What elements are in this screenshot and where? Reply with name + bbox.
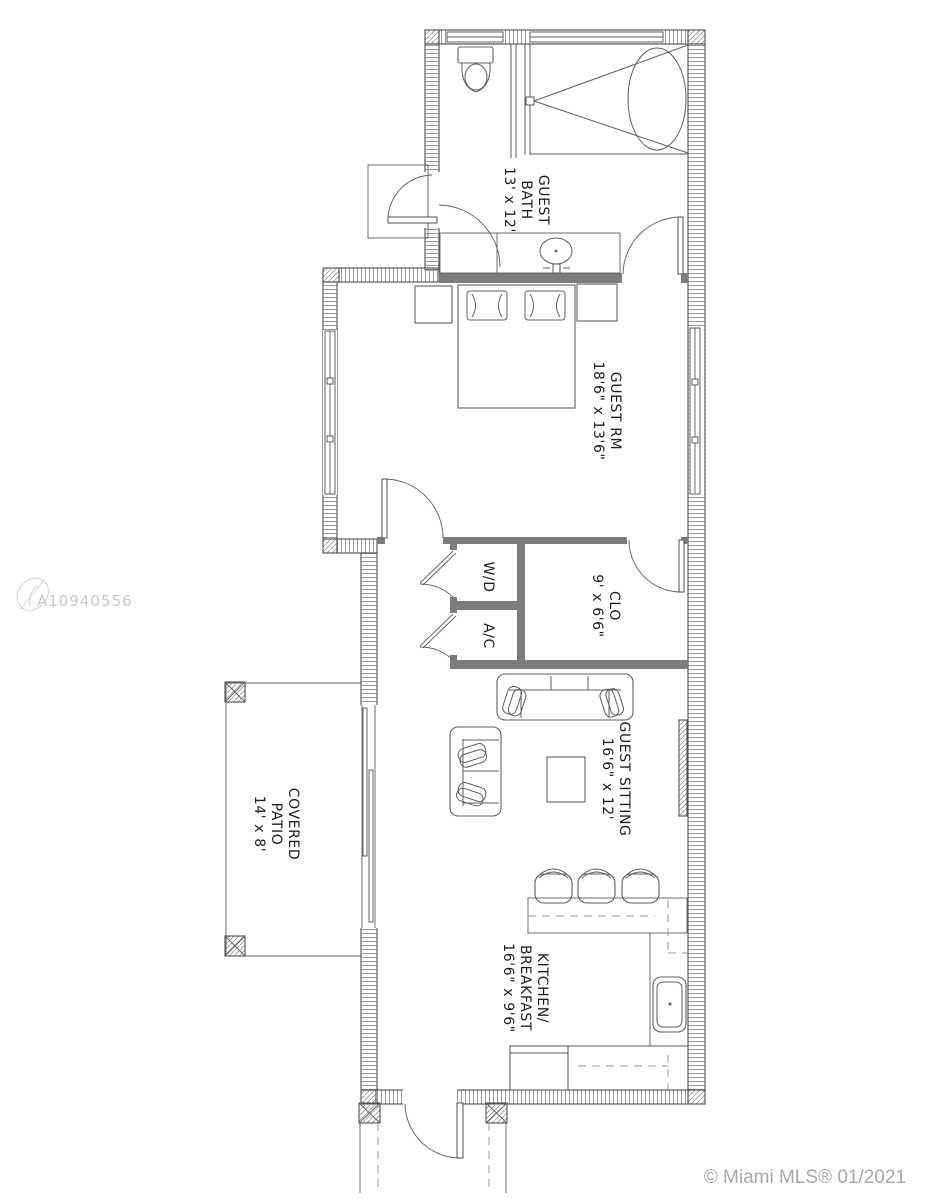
svg-text:W/D: W/D bbox=[480, 561, 496, 592]
toilet bbox=[458, 47, 493, 92]
sofa-long bbox=[497, 674, 633, 720]
wall-bath-left bbox=[425, 44, 439, 270]
tv-console bbox=[679, 720, 687, 816]
porch-post-left bbox=[359, 1103, 380, 1123]
bath-door-leaf bbox=[678, 217, 683, 274]
wall-wd-top bbox=[443, 537, 517, 544]
label-guest-bath: GUEST BATH 13' x 12' bbox=[501, 167, 551, 233]
wall-corner-tl bbox=[425, 30, 439, 44]
watermark-id: A10940556 bbox=[37, 592, 133, 610]
nightstand-right bbox=[577, 284, 617, 321]
bath-fixtures bbox=[440, 44, 688, 273]
svg-text:GUEST SITTING: GUEST SITTING bbox=[616, 722, 632, 837]
floor-plan-drawing: GUEST BATH 13' x 12' GUEST RM 18'6" x 13… bbox=[0, 0, 927, 1200]
label-covered-patio: COVERED PATIO 14' x 8' bbox=[251, 788, 301, 861]
wall-clo-top bbox=[517, 537, 627, 544]
kitchen-sink bbox=[653, 977, 686, 1032]
svg-text:CLO: CLO bbox=[606, 591, 622, 621]
wd-jamb-1 bbox=[450, 544, 457, 550]
wall-wd-ac-divider bbox=[457, 601, 517, 610]
sliding-door bbox=[360, 705, 378, 928]
tub bbox=[628, 48, 686, 150]
svg-text:BATH: BATH bbox=[518, 180, 534, 220]
sitting-furniture bbox=[450, 674, 687, 816]
wd-door bbox=[420, 551, 456, 597]
wall-right bbox=[688, 44, 705, 1090]
svg-text:18'6" x 13'6": 18'6" x 13'6" bbox=[590, 361, 606, 460]
window-top-2 bbox=[529, 31, 664, 43]
label-guest-room: GUEST RM 18'6" x 13'6" bbox=[590, 361, 623, 460]
bath-exterior-door-arc-in bbox=[439, 205, 500, 267]
svg-text:BREAKFAST: BREAKFAST bbox=[517, 945, 533, 1031]
wall-block-bottom bbox=[450, 660, 688, 669]
wall-bath-bottom bbox=[439, 273, 622, 283]
entry-porch bbox=[359, 1103, 507, 1193]
shower bbox=[511, 44, 688, 158]
label-guest-sitting: GUEST SITTING 16'6" x 12' bbox=[599, 722, 632, 837]
svg-text:16'6" x 9'6": 16'6" x 9'6" bbox=[500, 943, 516, 1033]
window-guest-left bbox=[323, 330, 337, 495]
mls-watermark: A10940556 bbox=[17, 578, 133, 611]
svg-text:GUEST RM: GUEST RM bbox=[607, 372, 623, 450]
vanity-faucet bbox=[553, 264, 560, 273]
guest-room-door-leaf bbox=[382, 479, 387, 538]
porch-post-right bbox=[486, 1103, 507, 1123]
wall-step-lower bbox=[337, 539, 377, 553]
svg-text:16'6" x 12': 16'6" x 12' bbox=[599, 738, 615, 820]
svg-text:COVERED: COVERED bbox=[285, 788, 301, 861]
label-ac: A/C bbox=[480, 623, 496, 649]
wall-corner-guest-tl bbox=[323, 268, 339, 282]
svg-text:KITCHEN/: KITCHEN/ bbox=[534, 953, 550, 1023]
wall-step-upper bbox=[339, 268, 439, 282]
closet-door-arc bbox=[629, 540, 681, 592]
patio-post-bottom bbox=[225, 936, 245, 956]
guest-room-door-arc bbox=[384, 479, 443, 538]
sofa-short bbox=[450, 727, 501, 816]
wall-corner-bl bbox=[361, 1090, 376, 1104]
svg-text:13' x 12': 13' x 12' bbox=[501, 167, 517, 233]
entry-door-arc bbox=[405, 1104, 460, 1158]
svg-text:14' x 8': 14' x 8' bbox=[251, 796, 267, 852]
bath-door-arc bbox=[623, 217, 681, 274]
guest-room-furniture bbox=[415, 284, 617, 408]
label-closet: CLO 9' x 6'6" bbox=[589, 574, 622, 637]
window-guest-right bbox=[689, 327, 704, 495]
window-top-1 bbox=[446, 31, 504, 43]
patio-post-top bbox=[225, 682, 245, 702]
svg-text:PATIO: PATIO bbox=[268, 803, 284, 846]
vanity bbox=[440, 233, 620, 273]
ac-door bbox=[420, 614, 456, 660]
nightstand-left bbox=[415, 286, 452, 323]
bath-stoop bbox=[368, 165, 428, 238]
svg-text:A/C: A/C bbox=[480, 623, 496, 649]
bath-exterior-door-leaf bbox=[388, 217, 437, 223]
label-kitchen: KITCHEN/ BREAKFAST 16'6" x 9'6" bbox=[500, 943, 550, 1033]
entry-door-leaf bbox=[457, 1103, 463, 1158]
mls-credit: © Miami MLS® 01/2021 bbox=[704, 1167, 906, 1188]
closet-door-leaf bbox=[679, 540, 684, 592]
coffee-table bbox=[547, 757, 585, 802]
wd-jamb-2 bbox=[450, 597, 457, 613]
wall-corner-tr bbox=[688, 30, 705, 44]
wall-clo-left bbox=[517, 544, 525, 660]
label-wd: W/D bbox=[480, 561, 496, 592]
wall-corner-guest-bl bbox=[323, 539, 337, 553]
entry-door-opening bbox=[403, 1089, 457, 1105]
floor-plan-page: GUEST BATH 13' x 12' GUEST RM 18'6" x 13… bbox=[0, 0, 927, 1200]
svg-text:GUEST: GUEST bbox=[535, 175, 551, 225]
svg-text:9' x 6'6": 9' x 6'6" bbox=[589, 574, 605, 637]
range bbox=[510, 1046, 568, 1090]
wall-corner-br bbox=[688, 1090, 705, 1104]
